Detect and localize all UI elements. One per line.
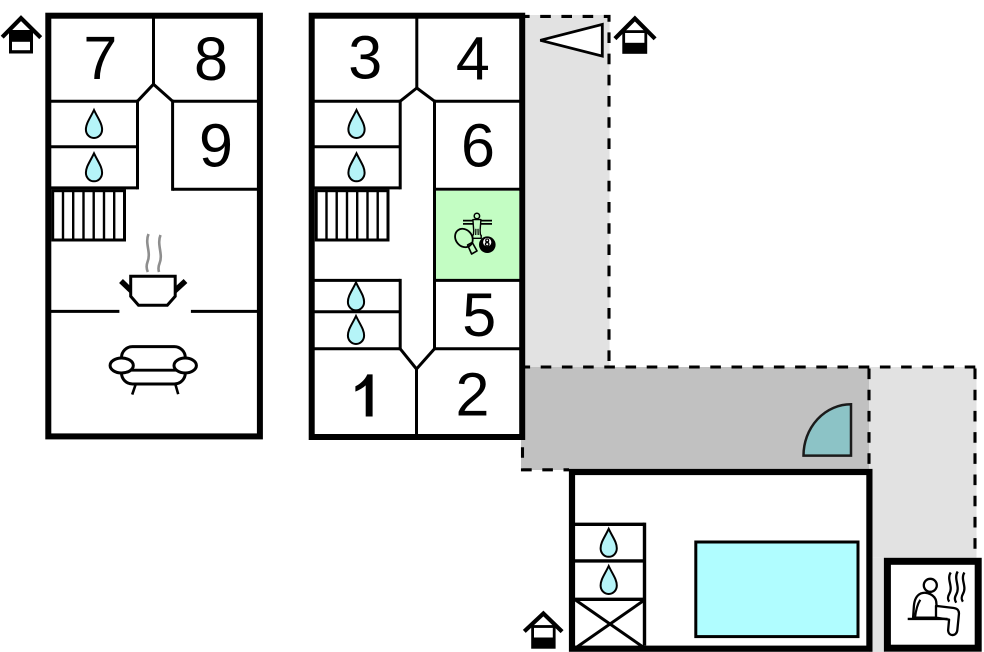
svg-text:4: 4 xyxy=(456,25,490,93)
svg-text:8: 8 xyxy=(194,25,228,93)
svg-text:5: 5 xyxy=(462,281,496,349)
svg-text:9: 9 xyxy=(199,112,233,180)
svg-text:7: 7 xyxy=(83,24,117,92)
svg-text:6: 6 xyxy=(461,112,495,180)
svg-text:2: 2 xyxy=(456,360,490,428)
svg-text:3: 3 xyxy=(348,24,382,92)
